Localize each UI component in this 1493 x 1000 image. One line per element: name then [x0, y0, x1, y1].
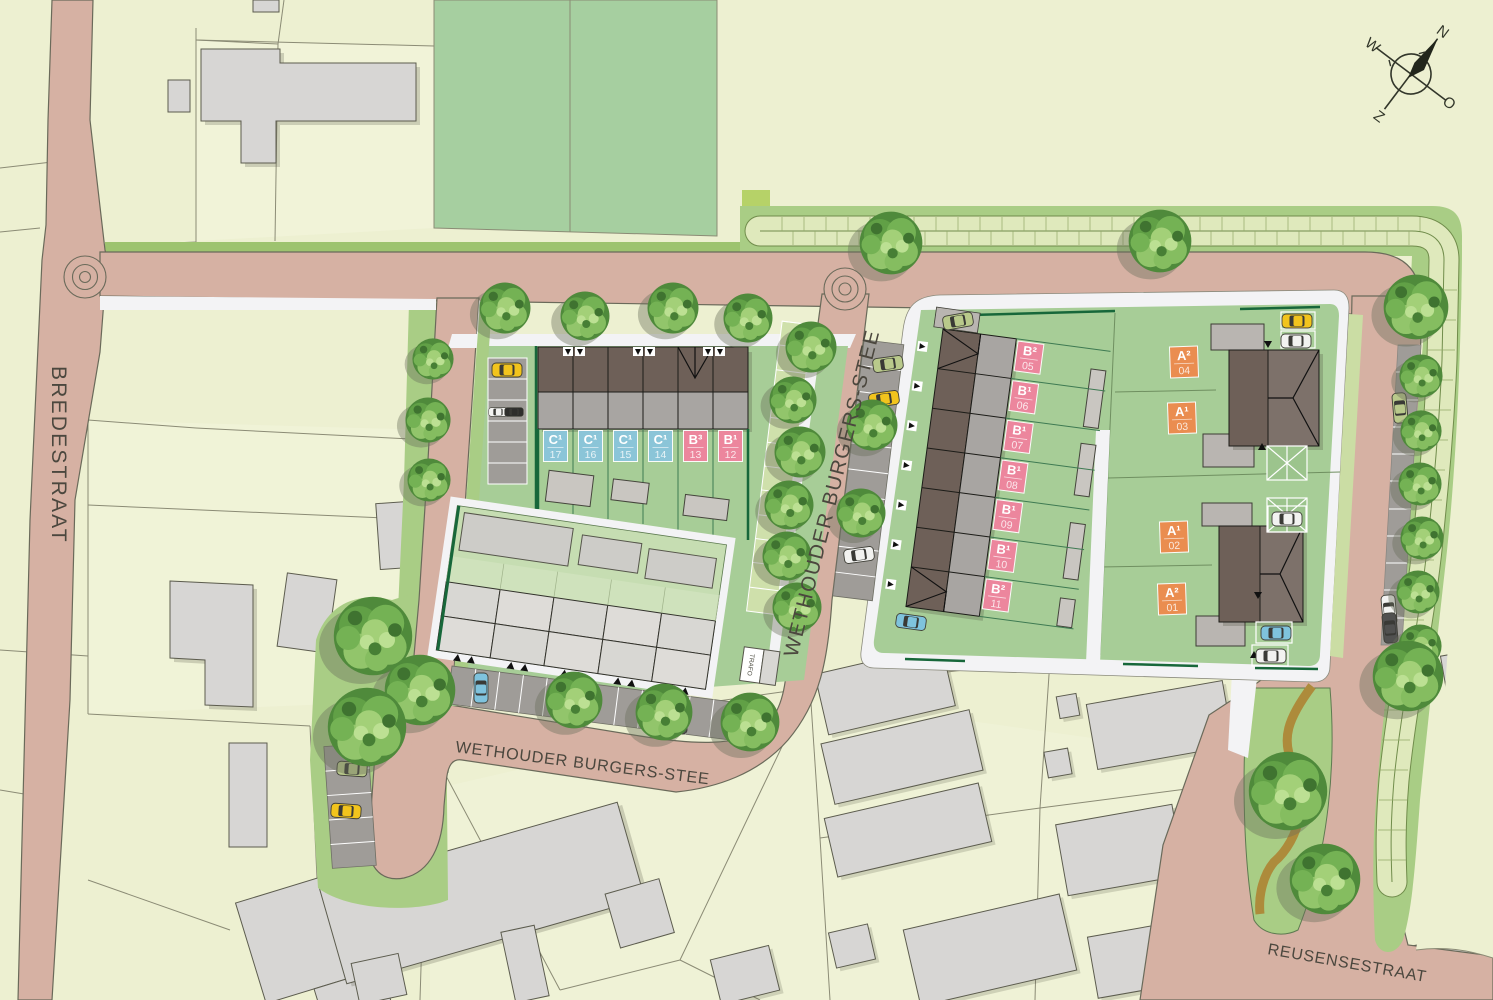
svg-text:03: 03 [1176, 421, 1188, 433]
svg-text:04: 04 [1178, 365, 1190, 377]
svg-text:12: 12 [725, 449, 737, 461]
svg-text:B²: B² [990, 581, 1006, 598]
svg-text:05: 05 [1021, 360, 1034, 373]
svg-text:14: 14 [655, 449, 667, 461]
svg-text:B¹: B¹ [724, 432, 738, 447]
svg-text:B¹: B¹ [1006, 462, 1022, 479]
svg-text:08: 08 [1005, 479, 1018, 492]
svg-text:01: 01 [1166, 602, 1178, 614]
svg-text:A¹: A¹ [1175, 404, 1189, 419]
svg-text:15: 15 [620, 449, 632, 461]
svg-text:16: 16 [585, 449, 597, 461]
svg-text:10: 10 [995, 558, 1008, 571]
svg-text:17: 17 [550, 449, 562, 461]
svg-text:B¹: B¹ [996, 541, 1012, 558]
svg-text:B¹: B¹ [1001, 501, 1017, 518]
svg-text:C¹: C¹ [549, 432, 563, 447]
svg-text:09: 09 [1000, 518, 1013, 531]
svg-text:13: 13 [690, 449, 702, 461]
svg-text:C¹: C¹ [654, 432, 668, 447]
svg-text:A²: A² [1177, 348, 1192, 363]
svg-text:02: 02 [1168, 540, 1180, 552]
svg-text:07: 07 [1011, 439, 1024, 452]
svg-text:06: 06 [1016, 400, 1029, 413]
svg-text:11: 11 [990, 598, 1003, 611]
svg-text:B³: B³ [689, 432, 703, 447]
svg-text:A¹: A¹ [1167, 523, 1181, 538]
svg-text:B¹: B¹ [1011, 422, 1027, 439]
svg-text:C¹: C¹ [584, 432, 598, 447]
svg-text:BREDESTRAAT: BREDESTRAAT [47, 366, 70, 544]
svg-text:B¹: B¹ [1017, 383, 1033, 400]
svg-text:A²: A² [1165, 585, 1180, 600]
svg-text:C¹: C¹ [619, 432, 633, 447]
svg-text:B²: B² [1022, 343, 1038, 360]
